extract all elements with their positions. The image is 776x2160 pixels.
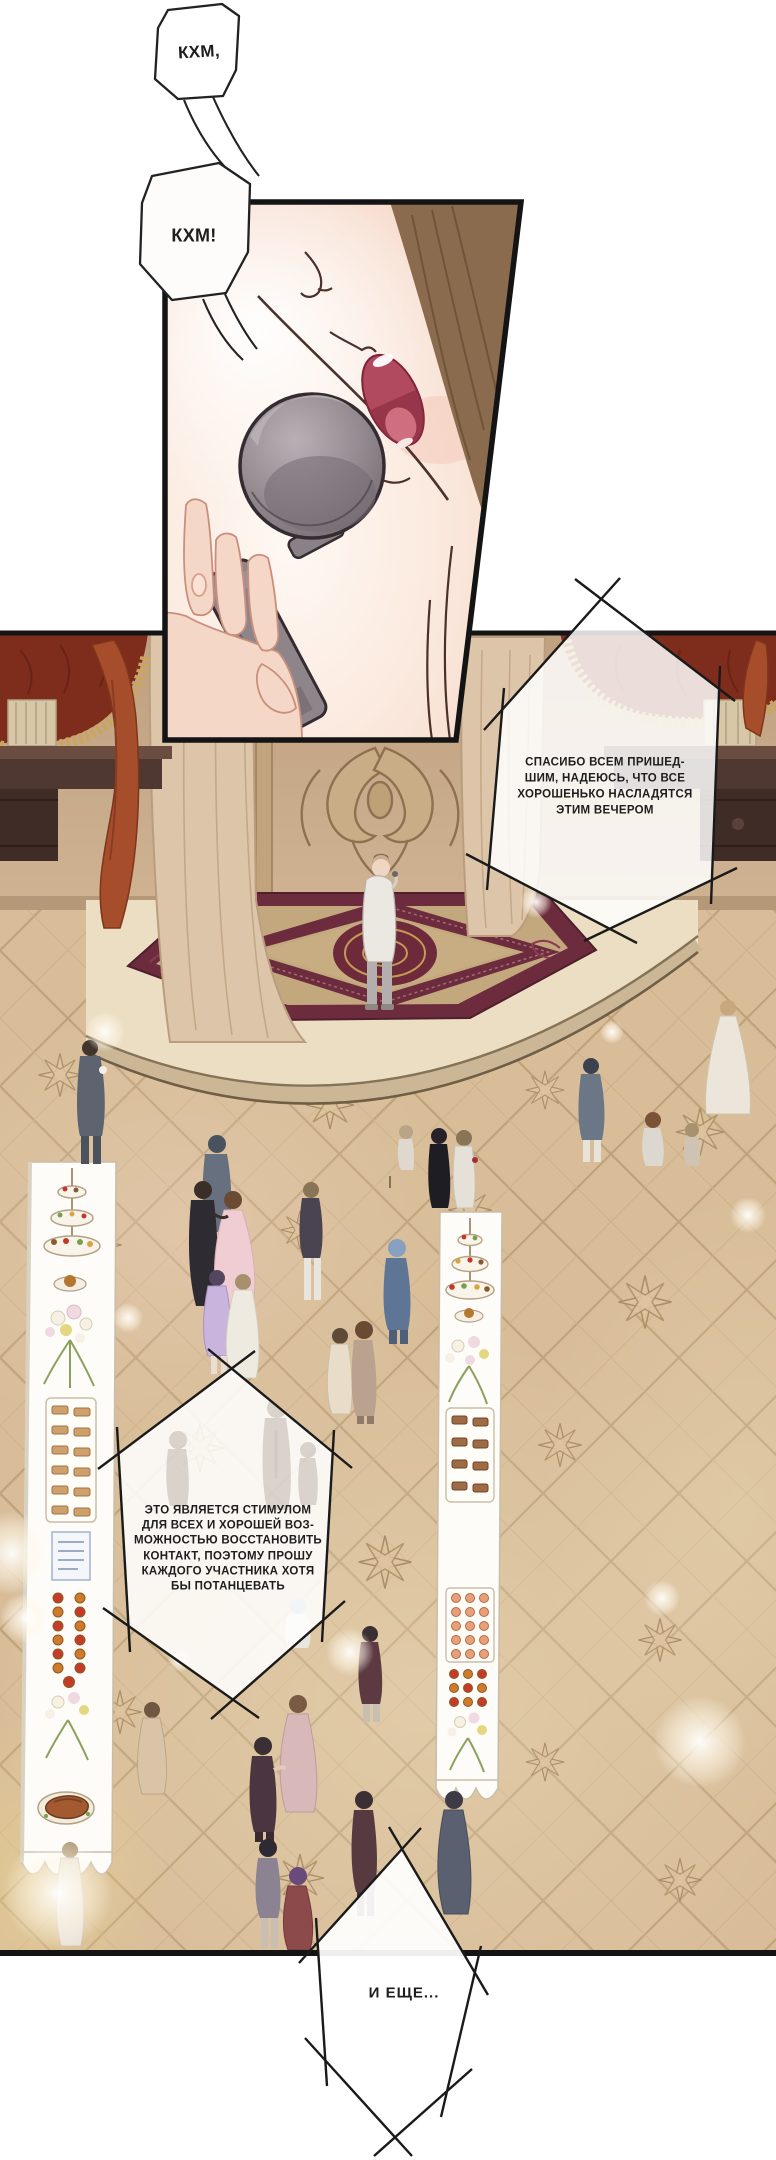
- speech-text-incentive: ЭТО ЯВЛЯЕТСЯ СТИМУЛОМ ДЛЯ ВСЕХ И ХОРОШЕЙ…: [134, 1503, 322, 1594]
- guest-man-brownhair: [642, 1112, 663, 1166]
- speech-line: ХОРОШЕНЬКО НАСЛАДЯТСЯ: [517, 787, 692, 803]
- speech-line: КОНТАКТ, ПОЭТОМУ ПРОШУ: [134, 1549, 322, 1564]
- speech-line: ЭТИМ ВЕЧЕРОМ: [517, 803, 692, 819]
- speech-line: БЫ ПОТАНЦЕВАТЬ: [134, 1579, 322, 1594]
- speech-line: КАЖДОГО УЧАСТНИКА ХОТЯ: [134, 1564, 322, 1579]
- speech-text-thanks: СПАСИБО ВСЕМ ПРИШЕД- ШИМ, НАДЕЮСЬ, ЧТО В…: [517, 755, 692, 818]
- left-banquet-table: [22, 1162, 116, 1874]
- manga-page: КХМ, КХМ! СПАСИБО ВСЕМ ПРИШЕД- ШИМ, НАДЕ…: [0, 0, 776, 2160]
- speech-line: ДЛЯ ВСЕХ И ХОРОШЕЙ ВОЗ-: [134, 1519, 322, 1534]
- speech-text-and-more: И ЕЩЕ...: [369, 1984, 440, 2001]
- speech-text-cough-small: КХМ,: [178, 41, 221, 63]
- tablecloth-end: [436, 1780, 498, 1799]
- roast-plate: [38, 1792, 94, 1824]
- sandwich-tray: [446, 1408, 494, 1502]
- candy-rows: [450, 1670, 487, 1707]
- shrimp-tray: [446, 1588, 494, 1662]
- sandwich-tray: [46, 1398, 96, 1522]
- speech-text-cough-big: КХМ!: [171, 226, 216, 247]
- menu-card: [52, 1532, 90, 1580]
- comic-artwork: [0, 0, 776, 2160]
- right-banquet-table: [436, 1212, 502, 1799]
- speech-line: МОЖНОСТЬЮ ВОССТАНОВИТЬ: [134, 1534, 322, 1549]
- speech-line: ШИМ, НАДЕЮСЬ, ЧТО ВСЕ: [517, 771, 692, 787]
- speech-line: ЭТО ЯВЛЯЕТСЯ СТИМУЛОМ: [134, 1503, 322, 1518]
- guest-small-figure: [684, 1123, 700, 1166]
- speech-line: СПАСИБО ВСЕМ ПРИШЕД-: [517, 755, 692, 771]
- bubble-cough-small: [155, 4, 259, 178]
